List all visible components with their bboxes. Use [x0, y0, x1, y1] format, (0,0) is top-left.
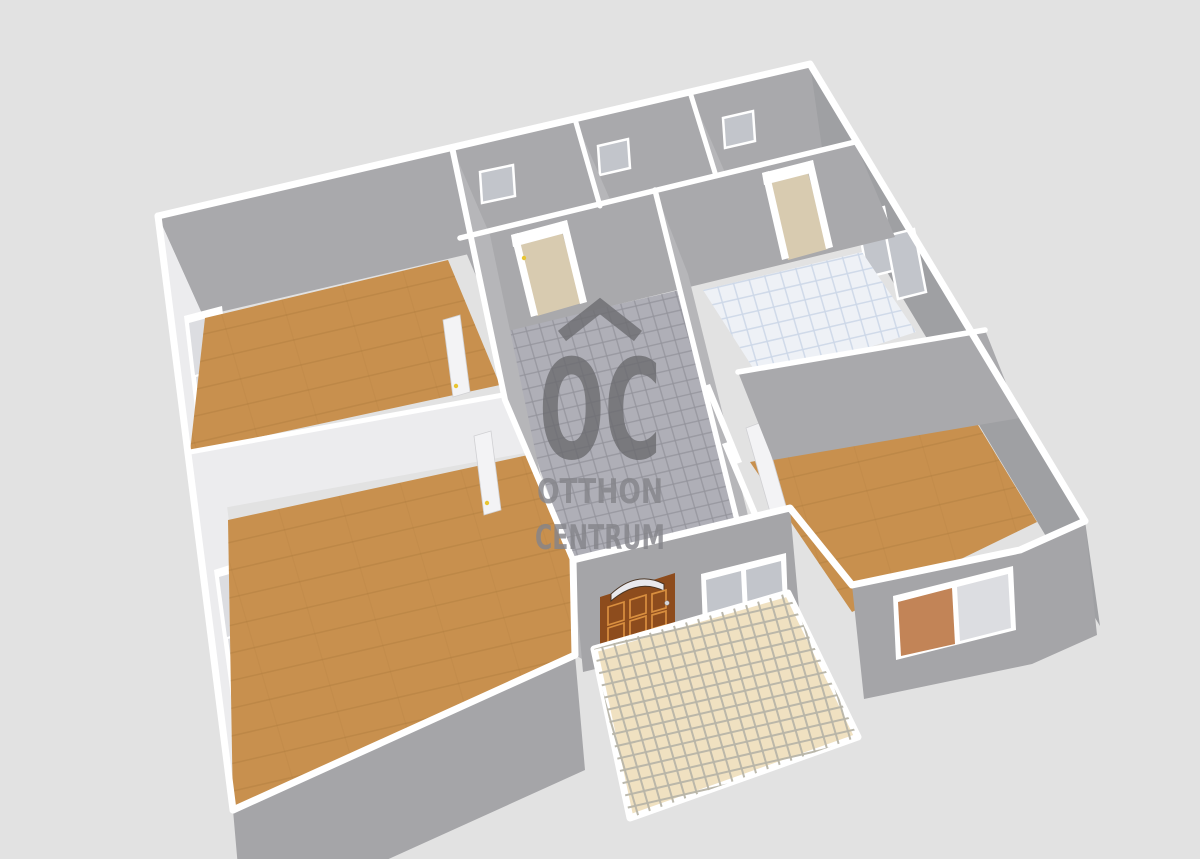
door-handle-icon: [485, 501, 489, 505]
watermark-line1: OTTHON: [537, 472, 663, 512]
floorplan-3d-render: OC OTTHON CENTRUM: [0, 0, 1200, 859]
door-handle-icon: [454, 384, 458, 388]
small-window-1: [480, 165, 515, 203]
watermark: OC OTTHON CENTRUM: [535, 306, 665, 558]
watermark-initials: OC: [539, 330, 661, 491]
small-window-3: [723, 111, 755, 148]
small-window-2: [598, 139, 630, 175]
door-handle-icon: [665, 601, 670, 606]
door-handle-icon: [522, 256, 526, 260]
watermark-line2: CENTRUM: [535, 518, 665, 558]
